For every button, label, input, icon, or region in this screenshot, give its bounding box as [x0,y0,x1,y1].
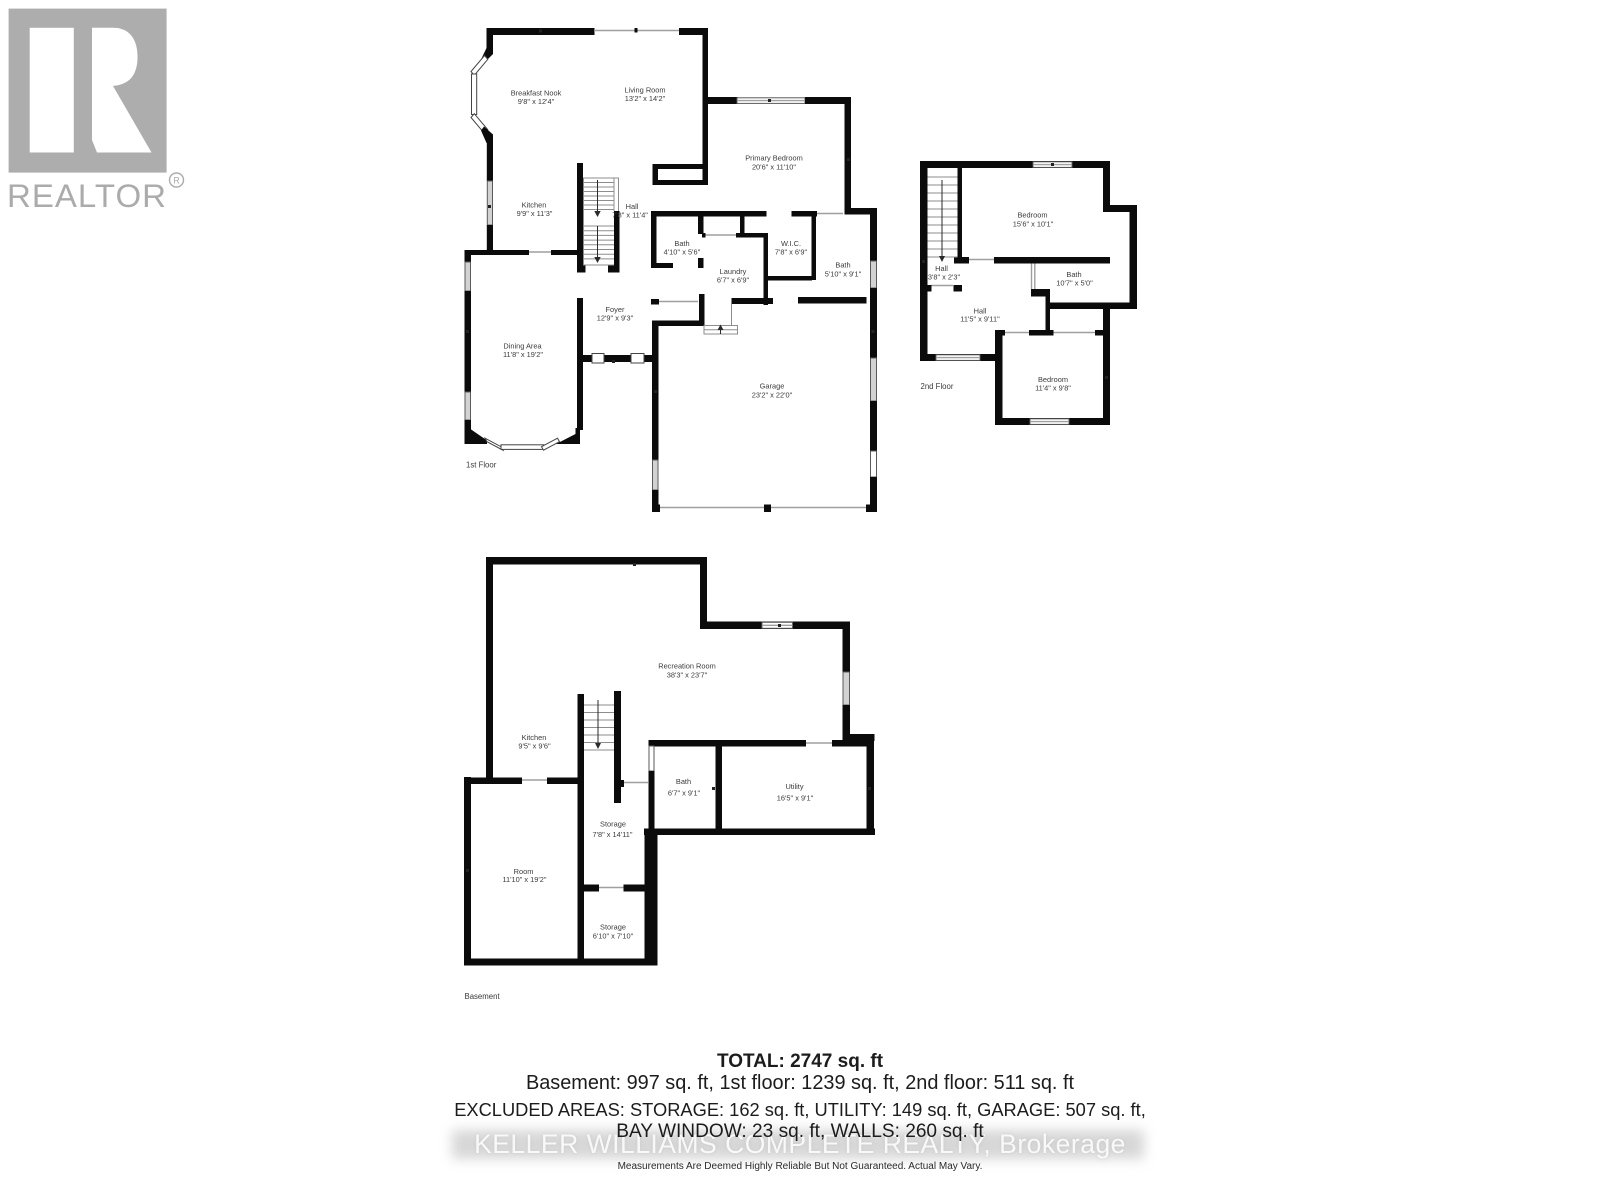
svg-text:Garage: Garage [760,382,785,391]
svg-text:11'4" x 9'8": 11'4" x 9'8" [1035,384,1071,393]
svg-text:11'10" x 19'2": 11'10" x 19'2" [502,875,546,884]
svg-text:11'8" x 19'2": 11'8" x 19'2" [503,350,543,359]
svg-text:7'8" x 6'9": 7'8" x 6'9" [775,248,808,257]
svg-text:R: R [173,175,180,185]
svg-text:7'8" x 11'4": 7'8" x 11'4" [612,211,648,220]
svg-text:9'9" x 11'3": 9'9" x 11'3" [517,209,553,218]
svg-text:2nd Floor: 2nd Floor [921,382,954,391]
svg-text:10'7" x 5'0": 10'7" x 5'0" [1056,279,1093,288]
svg-text:13'2" x 14'2": 13'2" x 14'2" [625,94,666,103]
svg-text:9'8" x 12'4": 9'8" x 12'4" [518,97,555,106]
svg-text:Bath: Bath [676,777,691,786]
svg-text:Recreation Room: Recreation Room [658,662,716,671]
svg-text:9'5" x 9'6": 9'5" x 9'6" [518,742,551,751]
svg-text:23'2" x 22'0": 23'2" x 22'0" [752,391,793,400]
svg-text:6'7" x 6'9": 6'7" x 6'9" [717,276,750,285]
svg-text:6'7" x 9'1": 6'7" x 9'1" [668,789,701,798]
svg-text:REALTOR: REALTOR [7,178,167,214]
svg-text:5'10" x 9'1": 5'10" x 9'1" [825,270,862,279]
svg-text:38'3" x 23'7": 38'3" x 23'7" [667,671,708,680]
svg-text:Primary Bedroom: Primary Bedroom [745,154,803,163]
svg-text:1st Floor: 1st Floor [466,461,497,470]
svg-text:Storage: Storage [600,923,626,932]
svg-text:Storage: Storage [600,820,626,829]
svg-text:12'9" x 9'3": 12'9" x 9'3" [597,314,634,323]
svg-text:20'6" x 11'10": 20'6" x 11'10" [752,163,796,172]
svg-text:16'5" x 9'1": 16'5" x 9'1" [777,794,814,803]
svg-text:4'10'' x 5'6'': 4'10'' x 5'6'' [664,248,701,257]
svg-text:Bedroom: Bedroom [1018,211,1048,220]
svg-text:15'6" x 10'1": 15'6" x 10'1" [1013,220,1054,229]
svg-text:6'10" x 7'10": 6'10" x 7'10" [593,932,634,941]
svg-text:3'8" x 2'3": 3'8" x 2'3" [928,273,961,282]
svg-text:Basement: Basement [465,992,501,1001]
svg-text:Bath: Bath [835,261,850,270]
svg-text:Utility: Utility [785,782,803,791]
svg-text:7'8" x 14'11": 7'8" x 14'11" [593,830,633,839]
svg-text:11'5" x 9'11": 11'5" x 9'11" [960,315,1000,324]
